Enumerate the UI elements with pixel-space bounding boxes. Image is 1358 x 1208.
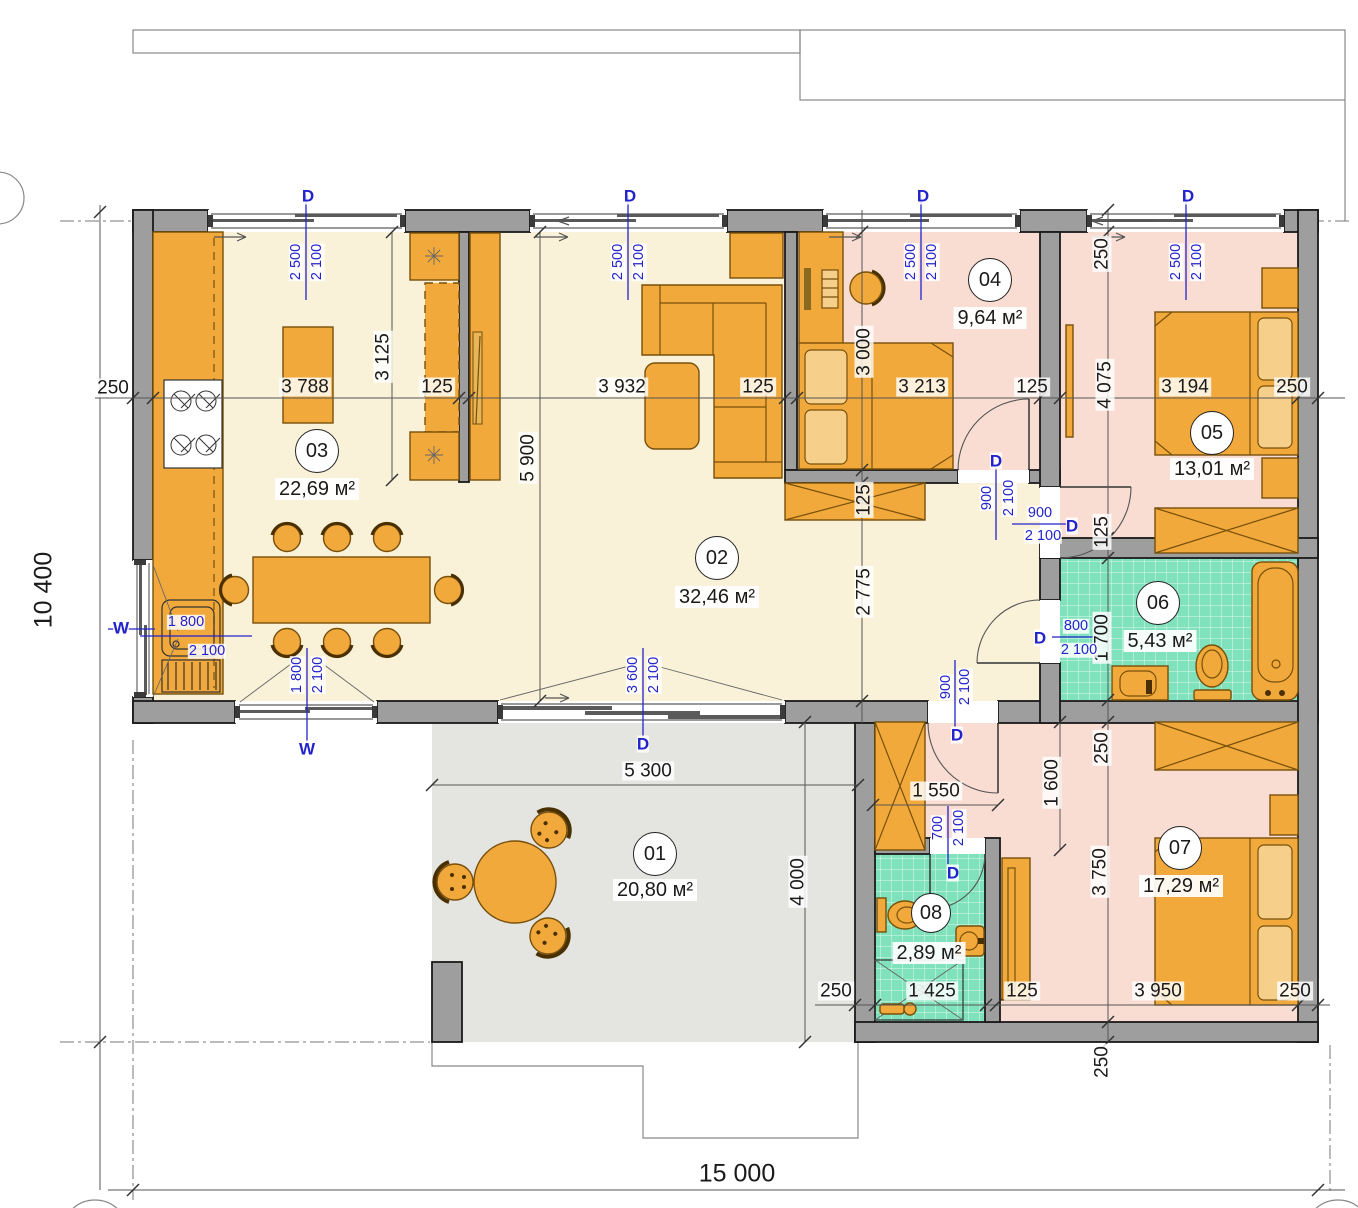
dim-125-d: 125 — [855, 482, 874, 518]
dim-125-f: 125 — [1004, 982, 1040, 1001]
dim-250-right: 250 — [1274, 378, 1310, 397]
room-03-area: 22,69 м² — [275, 478, 359, 500]
pillow — [805, 410, 847, 464]
room-01-number: 01 — [633, 832, 677, 876]
window-1-width: 2 500 — [289, 243, 304, 281]
dim-3750: 3 750 — [1091, 846, 1110, 898]
dim-125-e: 125 — [1093, 514, 1112, 550]
sliding-door-height: 2 100 — [647, 656, 662, 694]
room-04-number: 04 — [968, 258, 1012, 302]
door-05-width: 900 — [1027, 506, 1053, 521]
console-mirror — [1002, 858, 1030, 1000]
door-wc-width: 700 — [931, 815, 946, 841]
door-wc-mark: D — [947, 865, 959, 882]
media-cabinet — [730, 233, 783, 278]
wardrobe — [1155, 722, 1298, 770]
dim-3950: 3 950 — [1132, 982, 1184, 1001]
dim-3000: 3 000 — [855, 326, 874, 378]
pillow — [1258, 845, 1292, 919]
room-07-number-label: 07 — [1169, 837, 1191, 860]
window-1-height: 2 100 — [310, 243, 325, 281]
window-2-mark: D — [624, 188, 636, 205]
window-4-height: 2 100 — [1190, 243, 1205, 281]
dim-3194: 3 194 — [1159, 378, 1211, 397]
window-2-height: 2 100 — [632, 243, 647, 281]
tv — [1066, 325, 1073, 437]
dim-overall-width: 15 000 — [697, 1162, 777, 1187]
room-07-number: 07 — [1158, 826, 1202, 870]
nightstand — [1262, 458, 1298, 498]
room-05-area: 13,01 м² — [1170, 458, 1254, 480]
room-05-number-label: 05 — [1201, 422, 1223, 445]
room-06-number-label: 06 — [1147, 592, 1169, 615]
dim-5900: 5 900 — [519, 432, 538, 484]
room-06-area: 5,43 м² — [1124, 630, 1197, 652]
dining-table — [253, 557, 430, 623]
room-04-area: 9,64 м² — [954, 307, 1027, 329]
room-03-number-label: 03 — [306, 440, 328, 463]
door-05-mark: D — [1066, 518, 1078, 535]
stove — [164, 380, 222, 468]
door-06-height: 2 100 — [1060, 643, 1098, 658]
door-04-height: 2 100 — [1002, 479, 1017, 517]
wardrobe — [1155, 508, 1298, 553]
sliding-door-mark: D — [637, 736, 649, 753]
room-05-number: 05 — [1190, 411, 1234, 455]
room-03-number: 03 — [295, 429, 339, 473]
room-04-number-label: 04 — [979, 269, 1001, 292]
terrace-table — [474, 841, 556, 923]
room-07-area: 17,29 м² — [1139, 875, 1223, 897]
dim-250-r1: 250 — [1093, 236, 1112, 272]
door-hall-height: 2 100 — [958, 668, 973, 706]
room-08-number: 08 — [911, 893, 951, 933]
dim-125-b: 125 — [740, 378, 776, 397]
window-4-width: 2 500 — [1169, 243, 1184, 281]
room-01-number-label: 01 — [644, 843, 666, 866]
door-05-height: 2 100 — [1024, 529, 1062, 544]
window-1-mark: D — [302, 188, 314, 205]
dim-overall-height: 10 400 — [32, 550, 57, 630]
dim-250-left: 250 — [95, 379, 131, 398]
window-bottom-width: 1 800 — [290, 656, 305, 694]
door-wc-height: 2 100 — [952, 809, 967, 847]
monitor — [804, 268, 811, 310]
room-06-number: 06 — [1136, 581, 1180, 625]
window-left-width: 1 800 — [167, 615, 205, 630]
ottoman — [645, 363, 699, 449]
keyboard — [822, 270, 838, 308]
dim-4000: 4 000 — [789, 856, 808, 908]
window-4-mark: D — [1182, 188, 1194, 205]
floor-plan: 250 3 788 125 3 932 125 3 213 125 3 194 … — [0, 0, 1358, 1208]
room-08-number-label: 08 — [920, 902, 942, 925]
bathtub — [1252, 562, 1298, 700]
room-02-area: 32,46 м² — [675, 586, 759, 608]
bath-sink — [1112, 666, 1168, 700]
window-2-width: 2 500 — [611, 243, 626, 281]
nightstand — [1270, 795, 1298, 835]
window-3-height: 2 100 — [925, 243, 940, 281]
room-01-area: 20,80 м² — [613, 879, 697, 901]
window-3-mark: D — [917, 188, 929, 205]
window-left-height: 2 100 — [188, 644, 226, 659]
dim-250-r3: 250 — [1093, 1044, 1112, 1080]
door-06-mark: D — [1034, 630, 1046, 647]
dim-250-b1: 250 — [818, 982, 854, 1001]
kitchen-island — [283, 327, 333, 423]
dim-3932: 3 932 — [596, 378, 648, 397]
door-hall-mark: D — [951, 727, 963, 744]
dim-125-c: 125 — [1014, 378, 1050, 397]
sliding-door-width: 3 600 — [626, 656, 641, 694]
window-bottom-mark: W — [299, 741, 315, 758]
pillow — [805, 350, 847, 404]
dim-1600: 1 600 — [1043, 757, 1062, 809]
room-02-number-label: 02 — [706, 547, 728, 570]
office-chair — [850, 271, 884, 305]
dim-250-r2: 250 — [1093, 730, 1112, 766]
pillow — [1258, 318, 1292, 380]
door-06-width: 800 — [1063, 619, 1089, 634]
door-04-mark: D — [990, 453, 1002, 470]
dim-2775: 2 775 — [855, 566, 874, 618]
dim-3788: 3 788 — [279, 378, 331, 397]
dim-250-b2: 250 — [1277, 982, 1313, 1001]
door-04-width: 900 — [980, 485, 995, 511]
window-3-width: 2 500 — [904, 243, 919, 281]
toilet — [1194, 645, 1231, 700]
dim-5300: 5 300 — [622, 762, 674, 781]
dim-3125: 3 125 — [374, 331, 393, 383]
nightstand — [1262, 268, 1298, 308]
window-bottom-height: 2 100 — [311, 656, 326, 694]
dim-4075: 4 075 — [1096, 359, 1115, 411]
dim-125-a: 125 — [419, 378, 455, 397]
door-hall-width: 900 — [939, 674, 954, 700]
room-08-area: 2,89 м² — [893, 942, 966, 964]
dim-1550: 1 550 — [910, 782, 962, 801]
window-left-mark: W — [113, 620, 129, 637]
dim-3213: 3 213 — [896, 378, 948, 397]
dim-1425: 1 425 — [906, 982, 958, 1001]
room-02-number: 02 — [695, 536, 739, 580]
